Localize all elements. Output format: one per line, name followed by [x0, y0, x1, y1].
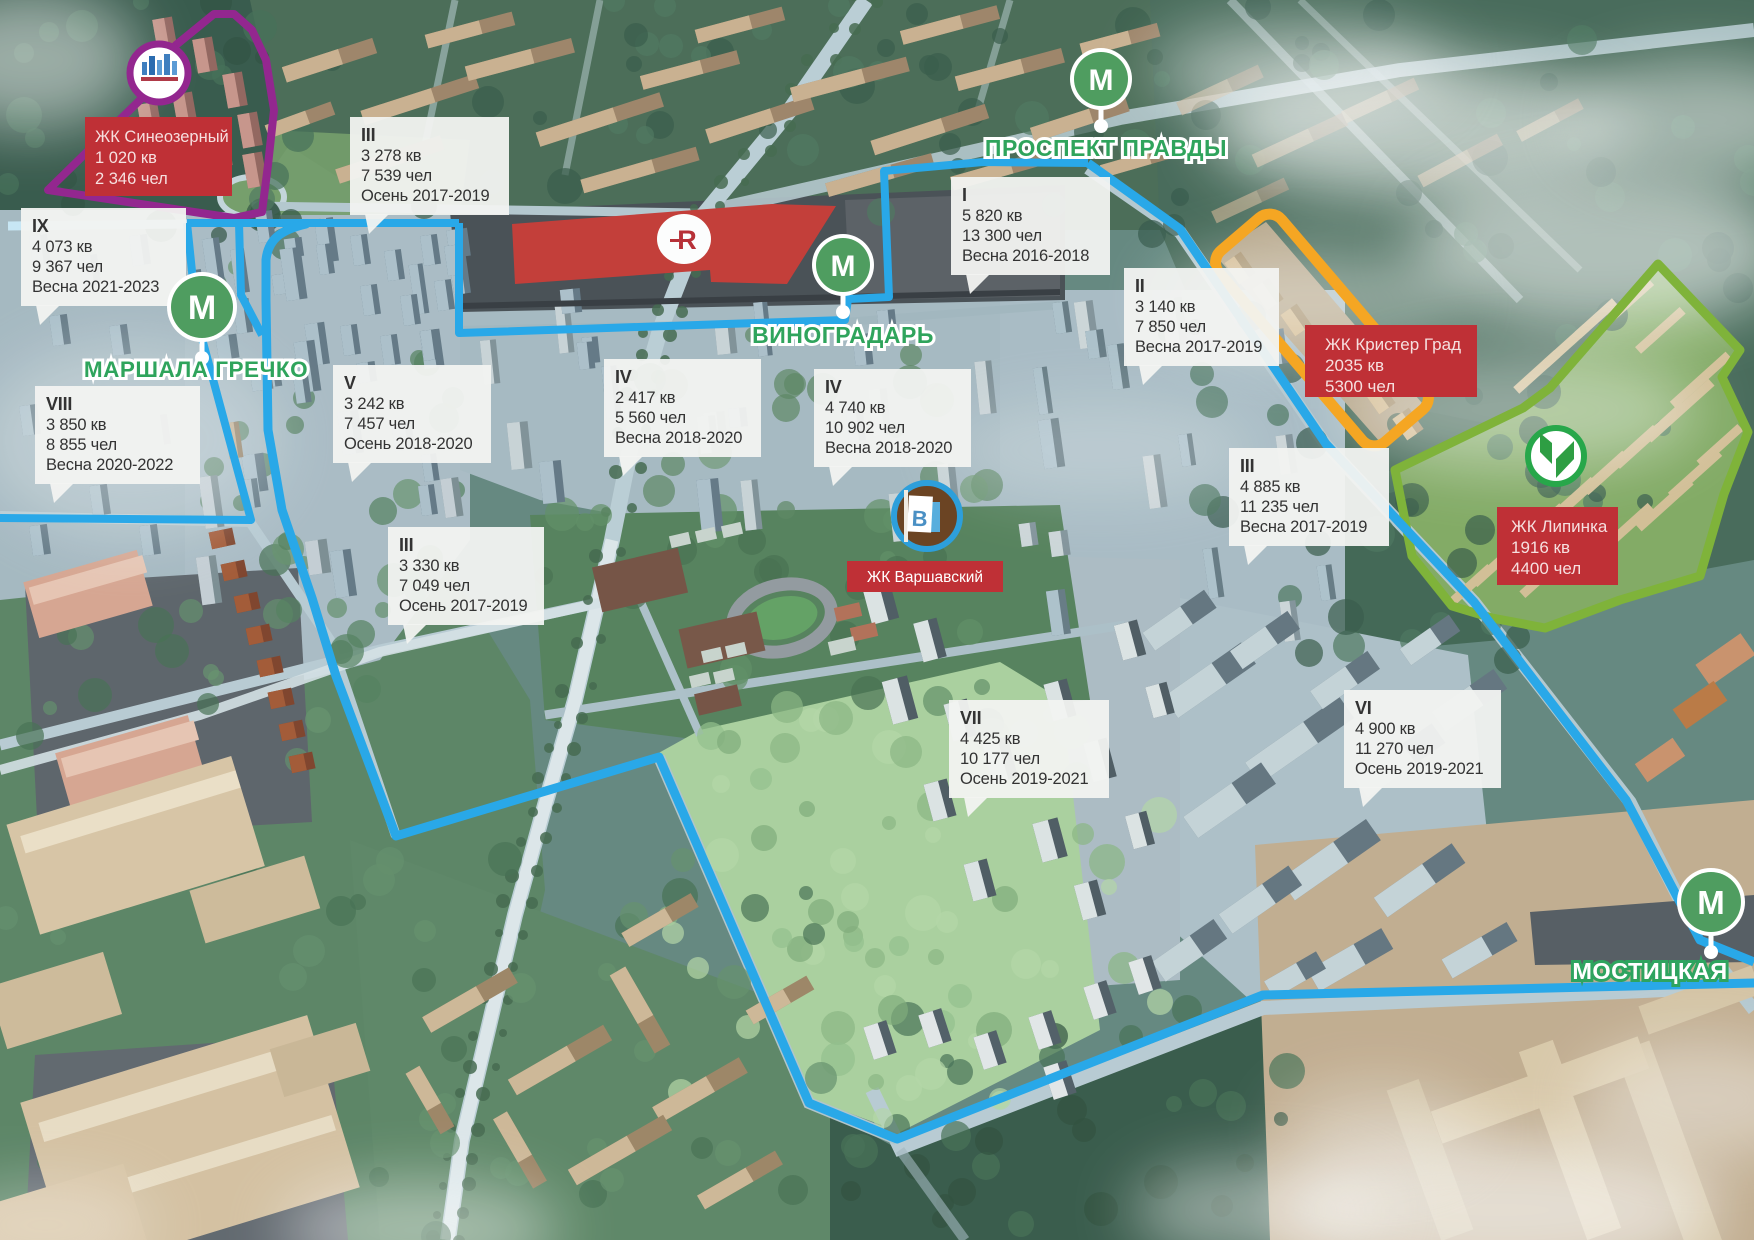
svg-text:IV: IV: [615, 367, 632, 387]
svg-text:3 850 кв: 3 850 кв: [46, 416, 107, 434]
svg-text:2035 кв: 2035 кв: [1325, 356, 1384, 375]
svg-text:7 539 чел: 7 539 чел: [361, 167, 432, 185]
svg-text:М: М: [1089, 64, 1114, 97]
svg-text:4 073 кв: 4 073 кв: [32, 238, 93, 256]
svg-text:ПРОСПЕКТ ПРАВДЫ: ПРОСПЕКТ ПРАВДЫ: [985, 135, 1227, 161]
svg-text:Весна 2018-2020: Весна 2018-2020: [615, 429, 742, 447]
svg-text:ЖК Варшавский: ЖК Варшавский: [867, 569, 983, 586]
svg-text:3 330 кв: 3 330 кв: [399, 557, 460, 575]
svg-text:МАРШАЛА ГРЕЧКО: МАРШАЛА ГРЕЧКО: [84, 357, 308, 382]
svg-text:V: V: [344, 373, 356, 393]
svg-text:1916 кв: 1916 кв: [1511, 538, 1570, 557]
svg-text:Осень 2017-2019: Осень 2017-2019: [361, 187, 489, 205]
svg-text:МОСТИЦКАЯ: МОСТИЦКАЯ: [1572, 958, 1727, 984]
svg-text:3 140 кв: 3 140 кв: [1135, 298, 1196, 316]
svg-text:5 560 чел: 5 560 чел: [615, 409, 686, 427]
svg-text:В: В: [911, 506, 928, 532]
svg-text:4 900 кв: 4 900 кв: [1355, 720, 1416, 738]
svg-text:11 270 чел: 11 270 чел: [1355, 740, 1434, 758]
svg-text:III: III: [399, 535, 413, 555]
svg-text:III: III: [361, 125, 375, 145]
svg-text:М: М: [1697, 884, 1725, 921]
svg-text:Весна 2018-2020: Весна 2018-2020: [825, 439, 952, 457]
svg-text:Осень 2017-2019: Осень 2017-2019: [399, 597, 527, 615]
svg-text:Весна 2021-2023: Весна 2021-2023: [32, 278, 159, 296]
svg-text:Весна 2020-2022: Весна 2020-2022: [46, 456, 173, 474]
svg-text:III: III: [1240, 456, 1254, 476]
svg-text:ВИНОГРАДАРЬ: ВИНОГРАДАРЬ: [752, 322, 934, 348]
svg-text:2 417 кв: 2 417 кв: [615, 389, 676, 407]
svg-text:2 346 чел: 2 346 чел: [95, 170, 168, 188]
svg-text:IX: IX: [32, 216, 49, 236]
svg-text:ЖК Кристер Град: ЖК Кристер Град: [1325, 335, 1461, 354]
svg-text:Весна 2017-2019: Весна 2017-2019: [1240, 518, 1367, 536]
svg-text:Осень 2019-2021: Осень 2019-2021: [960, 770, 1088, 788]
svg-text:IV: IV: [825, 377, 842, 397]
svg-text:3 242 кв: 3 242 кв: [344, 395, 405, 413]
svg-text:М: М: [188, 289, 216, 327]
svg-text:4 740 кв: 4 740 кв: [825, 399, 886, 417]
svg-text:II: II: [1135, 276, 1145, 296]
svg-text:Осень 2018-2020: Осень 2018-2020: [344, 435, 472, 453]
svg-text:10 177 чел: 10 177 чел: [960, 750, 1040, 768]
svg-text:Весна 2017-2019: Весна 2017-2019: [1135, 338, 1262, 356]
svg-text:13 300 чел: 13 300 чел: [962, 227, 1042, 245]
svg-text:7 850 чел: 7 850 чел: [1135, 318, 1206, 336]
svg-text:I: I: [962, 185, 967, 205]
svg-text:7 049 чел: 7 049 чел: [399, 577, 470, 595]
svg-text:11 235 чел: 11 235 чел: [1240, 498, 1319, 516]
svg-text:5 820 кв: 5 820 кв: [962, 207, 1023, 225]
svg-text:3 278 кв: 3 278 кв: [361, 147, 422, 165]
svg-text:М: М: [831, 250, 856, 283]
svg-text:Весна 2016-2018: Весна 2016-2018: [962, 247, 1089, 265]
svg-text:8 855 чел: 8 855 чел: [46, 436, 117, 454]
svg-text:VIII: VIII: [46, 394, 72, 414]
svg-text:10 902 чел: 10 902 чел: [825, 419, 905, 437]
svg-text:Осень 2019-2021: Осень 2019-2021: [1355, 760, 1483, 778]
svg-text:4 425 кв: 4 425 кв: [960, 730, 1021, 748]
svg-text:ЖК Липинка: ЖК Липинка: [1511, 517, 1608, 536]
svg-text:7 457 чел: 7 457 чел: [344, 415, 415, 433]
svg-text:1 020 кв: 1 020 кв: [95, 149, 157, 167]
svg-text:4400 чел: 4400 чел: [1511, 559, 1581, 578]
svg-text:VII: VII: [960, 708, 981, 728]
svg-text:9 367 чел: 9 367 чел: [32, 258, 103, 276]
svg-text:ЖК Синеозерный: ЖК Синеозерный: [95, 128, 229, 146]
svg-text:5300 чел: 5300 чел: [1325, 377, 1395, 396]
svg-text:4 885 кв: 4 885 кв: [1240, 478, 1301, 496]
svg-text:VI: VI: [1355, 698, 1372, 718]
